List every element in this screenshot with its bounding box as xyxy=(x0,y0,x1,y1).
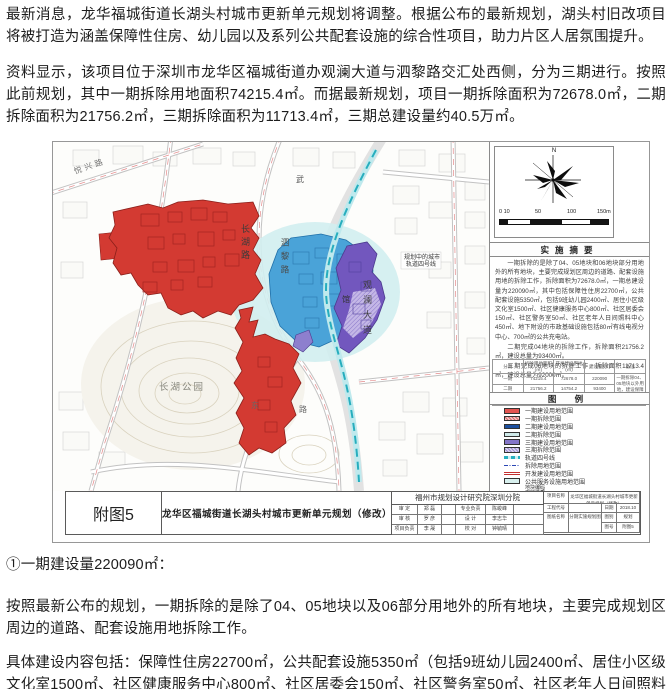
project-info-block: 项目名称 龙华区福城街道长湖头村城市更新单元规划（修改） 工程代号 日期2018… xyxy=(544,492,640,534)
road-label-dong: 东 xyxy=(251,400,259,410)
development-land-swatch xyxy=(504,472,520,475)
svg-text:轨道四号线: 轨道四号线 xyxy=(406,260,436,268)
metro-callout: 规划中的城市 轨道四号线 xyxy=(401,252,441,269)
institute-name: 福州市规划设计研究院深圳分院 xyxy=(392,492,543,505)
road-label-wu: 武 xyxy=(296,174,304,184)
article-page: 最新消息，龙华福城街道长湖头村城市更新单元规划将调整。根据公布的最新规划，湖头村… xyxy=(0,0,672,689)
paragraph-intro: 最新消息，龙华福城街道长湖头村城市更新单元规划将调整。根据公布的最新规划，湖头村… xyxy=(6,4,666,48)
svg-text:规划中的城市: 规划中的城市 xyxy=(404,253,440,261)
road-label-guan: 馆 xyxy=(342,294,350,304)
figure-title: 龙华区福城街道长湖头村城市更新单元规划（修改） xyxy=(162,492,392,534)
road-label-changhu: 长湖路 xyxy=(240,223,250,263)
paragraph-project-details: 资料显示，该项目位于深圳市龙华区福城街道办观澜大道与泗黎路交汇处西侧，分为三期进… xyxy=(6,62,666,128)
road-label-sili: 泗黎路 xyxy=(280,238,290,279)
table-row: 一期74215.4 72678.0220090 一期拆除04、05地块以外用地，… xyxy=(493,374,646,385)
map-canvas: 悦兴路 长湖路 泗黎路 观澜大道 武 馆 东 路 长湖公园 规划中的城市 轨道四… xyxy=(53,142,489,491)
public-service-swatch xyxy=(504,478,520,484)
road-label-lu: 路 xyxy=(299,404,307,414)
map-titlebar: 附图5 龙华区福城街道长湖头村城市更新单元规划（修改） 福州市规划设计研究院深圳… xyxy=(65,491,641,535)
paragraph-phase1-content: 具体建设内容包括：保障性住房22700㎡，公共配套设施5350㎡（包括9班幼儿园… xyxy=(6,652,666,689)
compass-rose-icon xyxy=(523,153,583,207)
planning-map-figure: 悦兴路 长湖路 泗黎路 观澜大道 武 馆 东 路 长湖公园 规划中的城市 轨道四… xyxy=(52,141,650,543)
scale-labels: 0 1050 100150m xyxy=(499,209,611,217)
scale-bar xyxy=(499,219,609,225)
summary-heading: 实施摘要 xyxy=(490,242,649,257)
project-name: 龙华区福城街道长湖头村城市更新单元规划（修改） xyxy=(569,492,640,504)
paragraph-phase1-scope: 按照最新公布的规划，一期拆除的是除了04、05地块以及06部分用地外的所有地块，… xyxy=(6,596,666,640)
institute-block: 福州市规划设计研究院深圳分院 审 定郑 磊 专业负责陈峻峰 审 核罗 彦 设 计… xyxy=(392,492,544,534)
figure-number: 附图5 xyxy=(66,492,162,534)
section-heading: ①一期建设量220090㎡： xyxy=(6,554,666,576)
phase2-build-swatch xyxy=(504,424,520,430)
credits-table: 审 定郑 磊 专业负责陈峻峰 审 核罗 彦 设 计李志华 项目负责李 晟 校 对… xyxy=(392,505,543,535)
park-label: 长湖公园 xyxy=(159,381,205,393)
legend-item: 公共服务设施用地范围 xyxy=(504,477,644,485)
compass-box: N 0 10 xyxy=(494,146,614,238)
sheet-name: 分期实施规划图 xyxy=(569,513,602,533)
summary-paragraph: 一期拆除的是除了04、05地块和06地块部分用地外的所有地块，主要完成规划区周边… xyxy=(495,259,644,342)
summary-body: 一期拆除的是除了04、05地块和06地块部分用地外的所有地块，主要完成规划区周边… xyxy=(490,257,649,357)
legend-heading: 图 例 xyxy=(490,392,649,405)
road-label-guanlan: 观澜大道 xyxy=(362,280,372,340)
phase1-build-swatch xyxy=(504,408,520,414)
phase2-demolish-swatch xyxy=(504,432,520,438)
phase3-demolish-swatch xyxy=(504,447,520,453)
phase1-demolish-swatch xyxy=(504,416,520,422)
metro-line-swatch xyxy=(504,456,520,459)
legend: 一期建设用地范围 一期拆除范围 二期建设用地范围 二期拆除范围 三期建设用地范围… xyxy=(504,407,644,498)
demolition-land-swatch xyxy=(504,465,520,467)
map-side-panel: N 0 10 xyxy=(489,142,649,491)
phase3-build-swatch xyxy=(504,439,520,445)
